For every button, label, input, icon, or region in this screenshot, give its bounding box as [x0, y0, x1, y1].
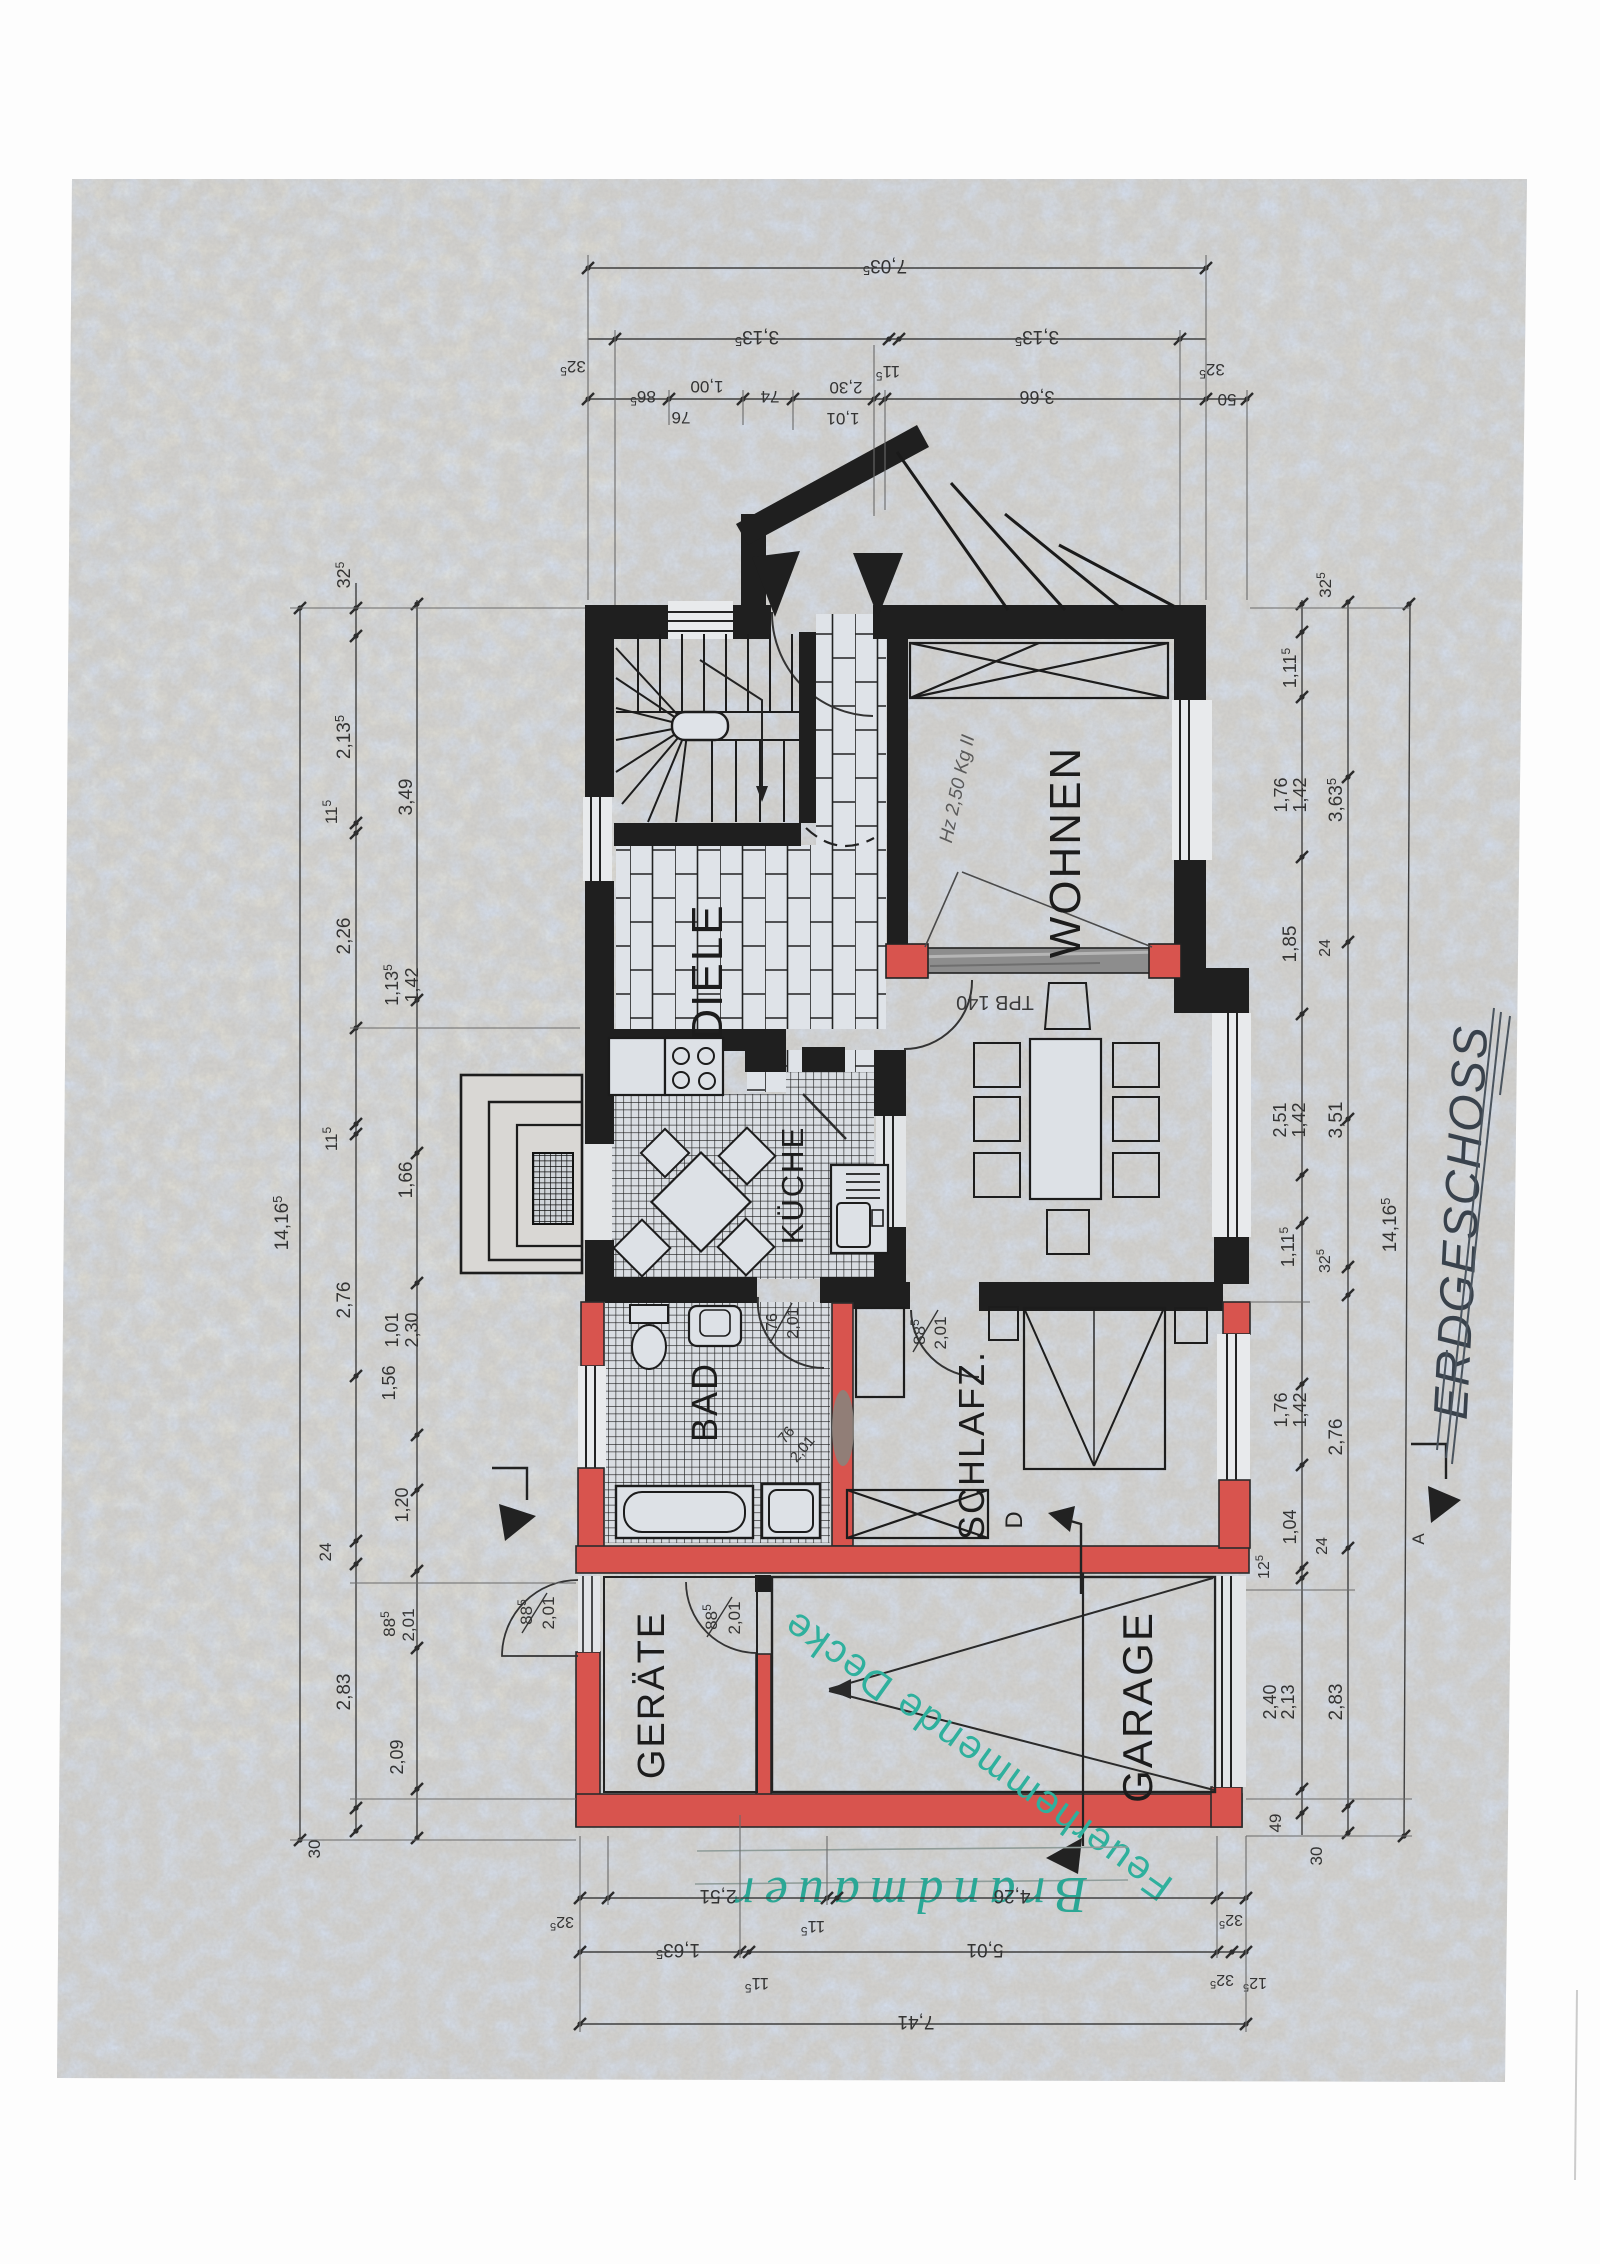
svg-text:2,51: 2,51 [700, 1885, 737, 1906]
svg-text:1,04: 1,04 [1280, 1509, 1300, 1544]
svg-text:3,66: 3,66 [1019, 387, 1054, 407]
svg-text:Brandmauer: Brandmauer [725, 1866, 1088, 1923]
svg-text:24: 24 [1314, 1537, 1331, 1555]
svg-text:2,83: 2,83 [334, 1674, 355, 1711]
svg-text:2,30: 2,30 [829, 378, 862, 397]
svg-text:2,30: 2,30 [402, 1312, 422, 1347]
svg-text:2,09: 2,09 [387, 1739, 407, 1774]
svg-text:2,40: 2,40 [1260, 1684, 1280, 1719]
svg-text:1,42: 1,42 [1290, 1392, 1310, 1427]
svg-text:30: 30 [1307, 1847, 1326, 1866]
svg-text:2,26: 2,26 [334, 918, 355, 955]
svg-text:GERÄTE: GERÄTE [631, 1611, 673, 1779]
svg-text:D: D [1001, 1511, 1028, 1528]
svg-text:BAD: BAD [684, 1362, 725, 1442]
svg-text:1,76: 1,76 [1271, 777, 1291, 812]
svg-text:DIELE: DIELE [683, 903, 732, 1040]
svg-text:5,01: 5,01 [967, 1939, 1004, 1960]
svg-text:2,83: 2,83 [1326, 1684, 1347, 1721]
svg-text:2,51: 2,51 [1270, 1102, 1290, 1137]
svg-text:49: 49 [1266, 1814, 1285, 1833]
svg-text:3,49: 3,49 [396, 779, 417, 816]
svg-text:1,01: 1,01 [382, 1312, 402, 1347]
svg-text:SCHLAFZ.: SCHLAFZ. [951, 1350, 992, 1540]
svg-text:WOHNEN: WOHNEN [1041, 746, 1090, 958]
svg-text:1,66: 1,66 [396, 1162, 417, 1199]
svg-text:GARAGE: GARAGE [1114, 1611, 1161, 1803]
svg-text:2,76: 2,76 [334, 1282, 355, 1319]
svg-text:7,41: 7,41 [898, 2011, 935, 2032]
svg-text:50: 50 [1218, 390, 1237, 409]
svg-text:2,76: 2,76 [1326, 1419, 1347, 1456]
svg-text:1,42: 1,42 [402, 967, 422, 1002]
svg-text:3,51: 3,51 [1326, 1102, 1347, 1139]
svg-text:76: 76 [672, 408, 691, 427]
svg-text:1,01: 1,01 [826, 409, 859, 428]
svg-text:1,42: 1,42 [1289, 1102, 1309, 1137]
svg-text:30: 30 [305, 1840, 324, 1859]
svg-text:74: 74 [761, 387, 780, 406]
svg-text:KÜCHE: KÜCHE [775, 1126, 810, 1245]
svg-text:4,26: 4,26 [994, 1885, 1031, 1906]
svg-text:1,00: 1,00 [690, 377, 723, 396]
svg-text:2,01: 2,01 [725, 1601, 744, 1634]
svg-text:1,76: 1,76 [1271, 1392, 1291, 1427]
svg-text:1,85: 1,85 [1280, 926, 1301, 963]
svg-text:1,56: 1,56 [379, 1365, 399, 1400]
svg-text:14,165: 14,165 [1378, 1198, 1401, 1253]
svg-text:A: A [1409, 1533, 1428, 1545]
svg-text:1,42: 1,42 [1290, 777, 1310, 812]
svg-text:2,13: 2,13 [1278, 1684, 1298, 1719]
svg-text:24: 24 [316, 1543, 335, 1562]
svg-text:14,165: 14,165 [270, 1196, 293, 1251]
svg-text:24: 24 [1317, 939, 1334, 957]
svg-text:1,20: 1,20 [392, 1487, 412, 1522]
svg-text:TPB 140: TPB 140 [956, 991, 1034, 1013]
svg-text:2,01: 2,01 [931, 1316, 950, 1349]
svg-text:2,01: 2,01 [399, 1608, 418, 1641]
